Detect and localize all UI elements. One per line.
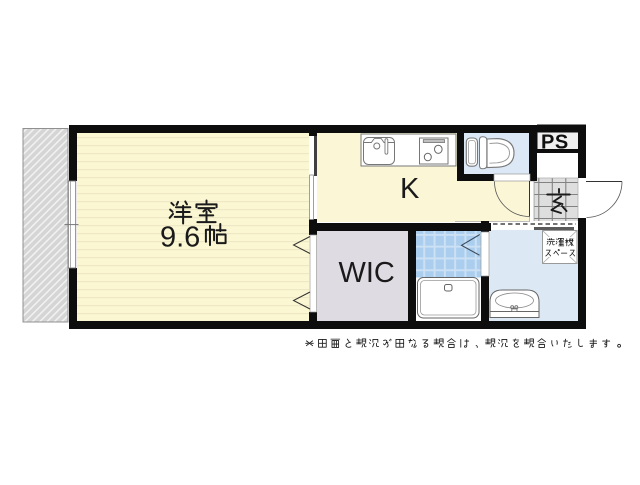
svg-text:PS: PS [541,131,569,153]
svg-text:9.6: 9.6 [160,222,200,254]
svg-text:K: K [400,173,420,205]
svg-text:WIC: WIC [339,257,395,289]
